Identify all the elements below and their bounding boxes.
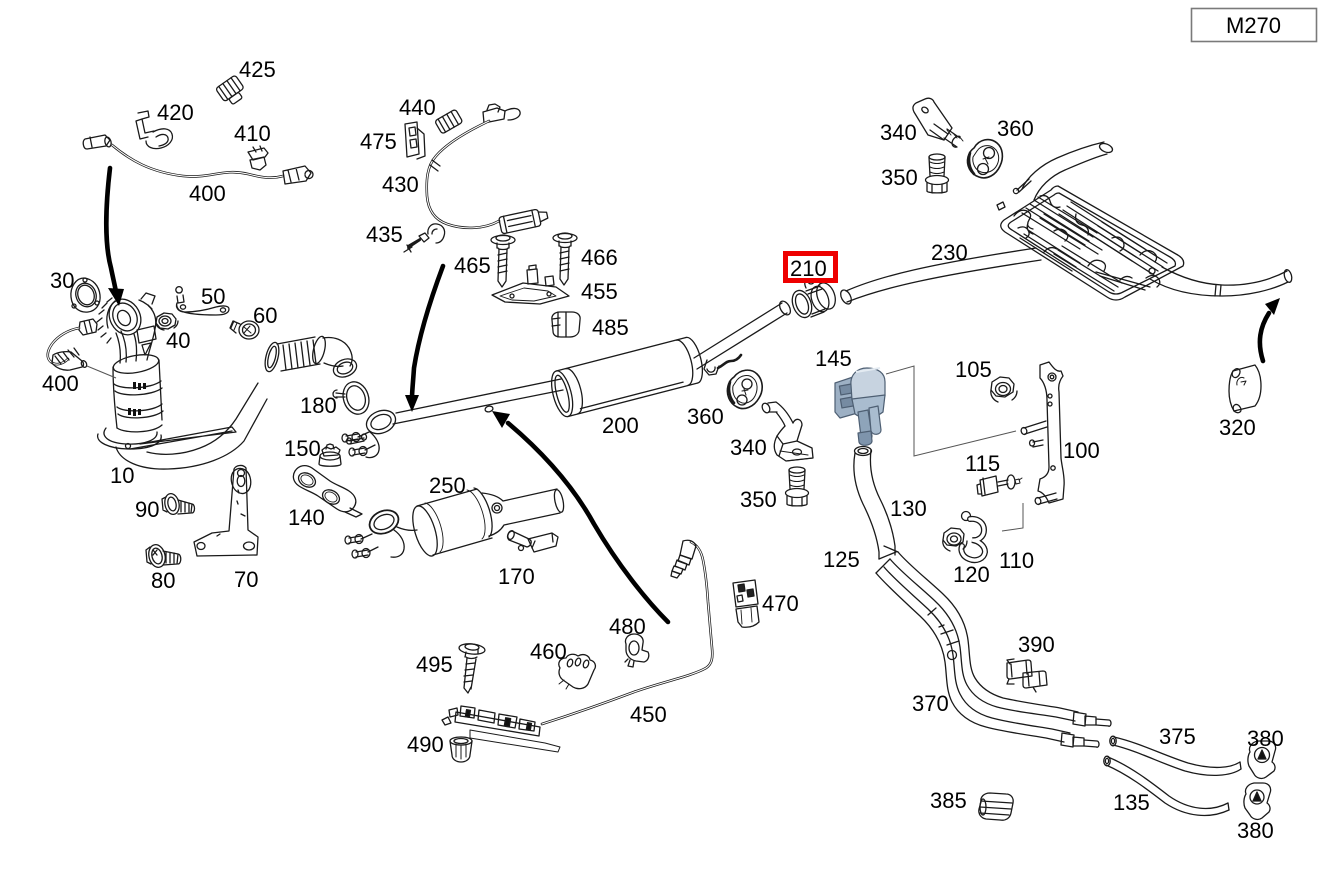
svg-text:150: 150: [284, 436, 321, 461]
svg-text:470: 470: [762, 591, 799, 616]
svg-text:125: 125: [823, 547, 860, 572]
svg-text:110: 110: [999, 548, 1034, 573]
svg-text:135: 135: [1113, 790, 1150, 815]
svg-text:466: 466: [581, 245, 618, 270]
svg-text:170: 170: [498, 564, 535, 589]
svg-text:380: 380: [1237, 818, 1274, 843]
svg-text:340: 340: [730, 435, 767, 460]
svg-text:380: 380: [1247, 726, 1284, 751]
svg-text:M270: M270: [1226, 13, 1281, 38]
svg-text:400: 400: [42, 371, 79, 396]
svg-text:485: 485: [592, 315, 629, 340]
svg-text:360: 360: [997, 116, 1034, 141]
svg-text:375: 375: [1159, 724, 1196, 749]
svg-text:420: 420: [157, 100, 194, 125]
svg-text:410: 410: [234, 121, 271, 146]
svg-text:10: 10: [110, 463, 134, 488]
svg-text:180: 180: [300, 393, 337, 418]
svg-text:440: 440: [399, 95, 436, 120]
svg-text:450: 450: [630, 702, 667, 727]
svg-text:350: 350: [740, 487, 777, 512]
svg-text:145: 145: [815, 346, 852, 371]
svg-text:390: 390: [1018, 632, 1055, 657]
svg-text:320: 320: [1219, 415, 1256, 440]
svg-text:80: 80: [151, 568, 175, 593]
svg-text:460: 460: [530, 639, 567, 664]
svg-text:130: 130: [890, 496, 927, 521]
svg-text:100: 100: [1063, 438, 1100, 463]
svg-text:340: 340: [880, 120, 917, 145]
svg-text:50: 50: [201, 284, 225, 309]
svg-text:360: 360: [687, 404, 724, 429]
svg-text:30: 30: [50, 268, 74, 293]
svg-text:200: 200: [602, 413, 639, 438]
svg-text:60: 60: [253, 303, 277, 328]
svg-text:370: 370: [912, 691, 949, 716]
svg-text:385: 385: [930, 788, 967, 813]
svg-text:250: 250: [429, 473, 466, 498]
svg-text:475: 475: [360, 129, 397, 154]
svg-text:480: 480: [609, 614, 646, 639]
svg-text:90: 90: [135, 497, 159, 522]
svg-text:435: 435: [366, 222, 403, 247]
svg-text:115: 115: [965, 451, 1000, 476]
svg-text:400: 400: [189, 181, 226, 206]
svg-text:230: 230: [931, 240, 968, 265]
svg-text:490: 490: [407, 732, 444, 757]
svg-text:425: 425: [239, 57, 276, 82]
svg-text:70: 70: [234, 567, 258, 592]
svg-text:40: 40: [166, 328, 190, 353]
svg-text:455: 455: [581, 279, 618, 304]
svg-text:465: 465: [454, 253, 491, 278]
svg-text:120: 120: [953, 562, 990, 587]
svg-text:105: 105: [955, 357, 992, 382]
svg-text:140: 140: [288, 505, 325, 530]
svg-text:350: 350: [881, 165, 918, 190]
svg-text:430: 430: [382, 172, 419, 197]
svg-text:495: 495: [416, 652, 453, 677]
svg-text:210: 210: [790, 256, 827, 281]
